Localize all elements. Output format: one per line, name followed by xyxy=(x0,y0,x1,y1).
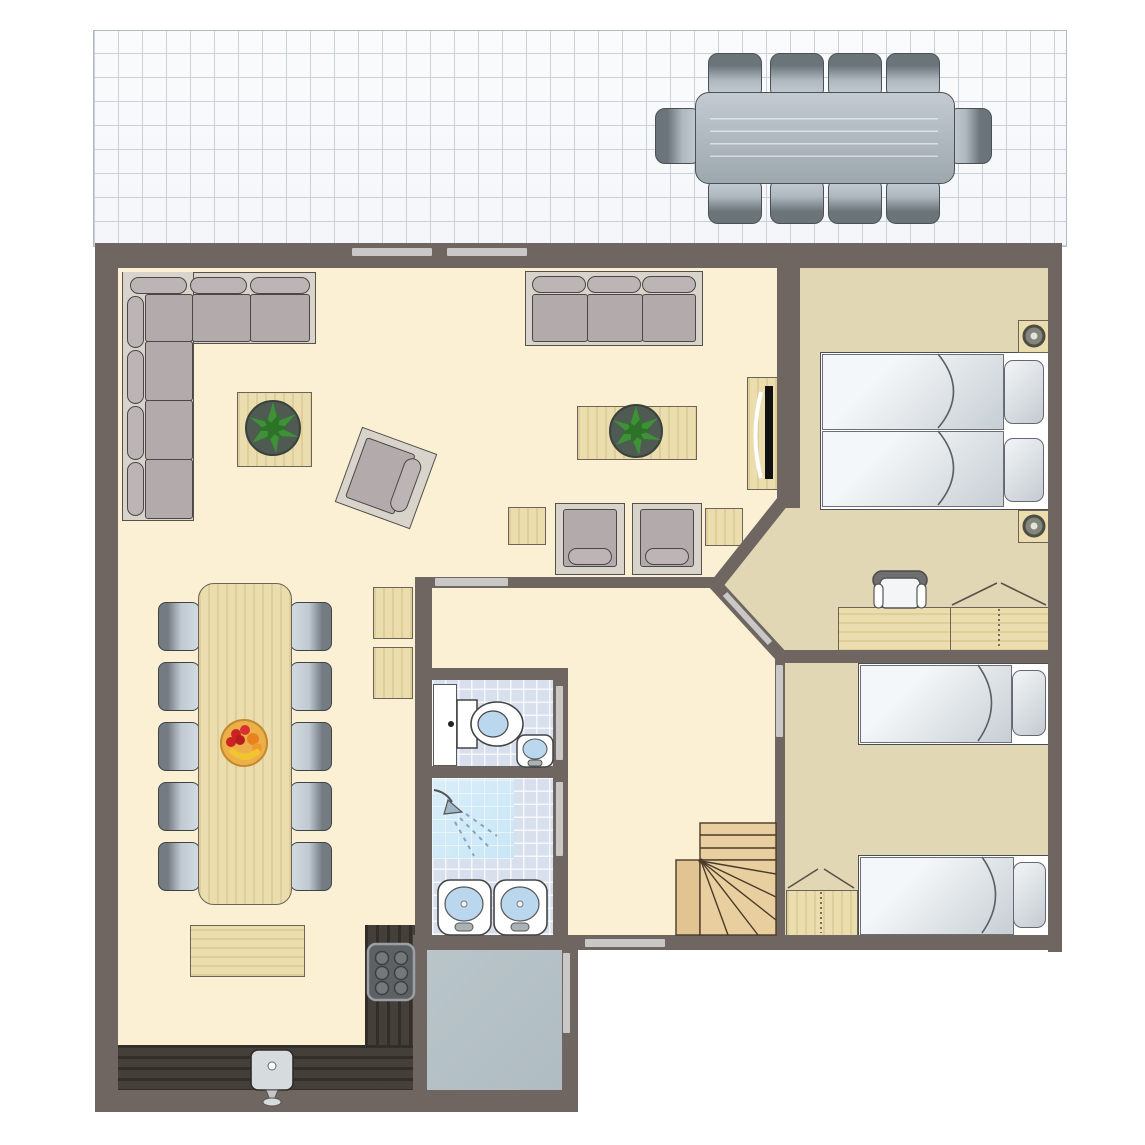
bed-mattress xyxy=(822,354,1004,430)
wall-toilet-top xyxy=(415,668,568,680)
sofa-back-cushion xyxy=(127,406,144,460)
plant-side-table xyxy=(237,392,312,467)
bed-mattress xyxy=(860,665,1012,743)
bed-mattress xyxy=(822,431,1004,507)
sofa-back-cushion xyxy=(642,276,696,293)
bed-mattress xyxy=(860,857,1014,935)
sofa-back-cushion xyxy=(250,277,310,294)
kitchen-counter-vertical xyxy=(365,925,415,1047)
dining-chair xyxy=(158,782,200,831)
wall-bath-left xyxy=(415,577,432,950)
sofa-back-cushion xyxy=(127,350,144,404)
door-toilet xyxy=(556,686,563,760)
sofa-back-cushion xyxy=(587,276,641,293)
front-door xyxy=(585,939,665,947)
bathroom-cabinet xyxy=(433,684,457,766)
bed-pillow xyxy=(1013,862,1046,928)
wall-toilet-shower xyxy=(415,766,568,778)
bed-pillow xyxy=(1004,360,1044,424)
sofa-seat xyxy=(192,294,251,342)
sofa-seat xyxy=(532,294,588,342)
dining-chair xyxy=(290,722,332,771)
outdoor-chair xyxy=(708,178,762,224)
sofa-back-cushion xyxy=(190,277,247,294)
sliding-door-panel xyxy=(447,248,527,256)
bed-pillow xyxy=(1012,670,1046,736)
wardrobe xyxy=(786,890,858,937)
nightstand xyxy=(1018,320,1052,353)
sofa-seat xyxy=(145,459,193,519)
sofa-seat xyxy=(642,294,696,342)
dining-chair xyxy=(290,842,332,891)
door-living-hall xyxy=(435,578,508,586)
wardrobe xyxy=(950,607,1050,652)
shower-corner xyxy=(432,779,514,859)
wall-right xyxy=(1048,243,1062,952)
dining-chair xyxy=(158,722,200,771)
dining-chair xyxy=(158,662,200,711)
door-shower-room xyxy=(556,782,563,856)
door-bedroom2 xyxy=(776,665,783,737)
sofa-back-cushion xyxy=(127,462,144,516)
door-utility xyxy=(563,953,570,1033)
wall-bedroom-divider xyxy=(783,650,1050,663)
floor-plan xyxy=(0,0,1145,1145)
nightstand xyxy=(1018,510,1052,543)
dining-chair xyxy=(290,602,332,651)
sofa-seat xyxy=(587,294,643,342)
dining-table xyxy=(198,583,292,905)
outdoor-chair xyxy=(886,178,940,224)
kitchen-counter-bottom xyxy=(118,1045,415,1092)
wall-table xyxy=(373,647,413,699)
bed-pillow xyxy=(1004,438,1044,502)
outdoor-chair xyxy=(770,178,824,224)
plant-coffee-table xyxy=(577,406,697,460)
wall-bottom-right xyxy=(415,935,1062,950)
sofa-seat xyxy=(145,400,193,460)
dining-chair xyxy=(158,602,200,651)
wall-bottom-left xyxy=(95,1090,578,1112)
outdoor-table xyxy=(695,92,955,184)
side-table xyxy=(705,508,743,546)
wall-top xyxy=(95,243,1062,268)
dining-chair xyxy=(290,782,332,831)
outdoor-table-top xyxy=(710,107,938,167)
sofa-seat xyxy=(145,294,193,342)
sofa-back-cushion xyxy=(532,276,586,293)
tv xyxy=(765,386,773,479)
outdoor-chair xyxy=(828,178,882,224)
utility-room-floor xyxy=(427,948,562,1090)
sliding-door-panel xyxy=(352,248,432,256)
sofa-back-cushion xyxy=(130,277,187,294)
sideboard xyxy=(190,925,305,977)
wall-left xyxy=(95,243,118,1112)
desk xyxy=(838,607,952,652)
tv-cabinet xyxy=(747,377,779,490)
sofa-seat xyxy=(250,294,310,342)
sofa-back-cushion xyxy=(127,296,144,348)
armchair-front-cushion xyxy=(645,548,689,565)
sofa-seat xyxy=(145,341,193,401)
side-table xyxy=(508,507,546,545)
dining-chair xyxy=(290,662,332,711)
wall-table xyxy=(373,587,413,639)
armchair-front-cushion xyxy=(568,548,612,565)
wall-utility-left xyxy=(413,935,427,1090)
wall-living-bedroom1 xyxy=(777,268,800,508)
dining-chair xyxy=(158,842,200,891)
